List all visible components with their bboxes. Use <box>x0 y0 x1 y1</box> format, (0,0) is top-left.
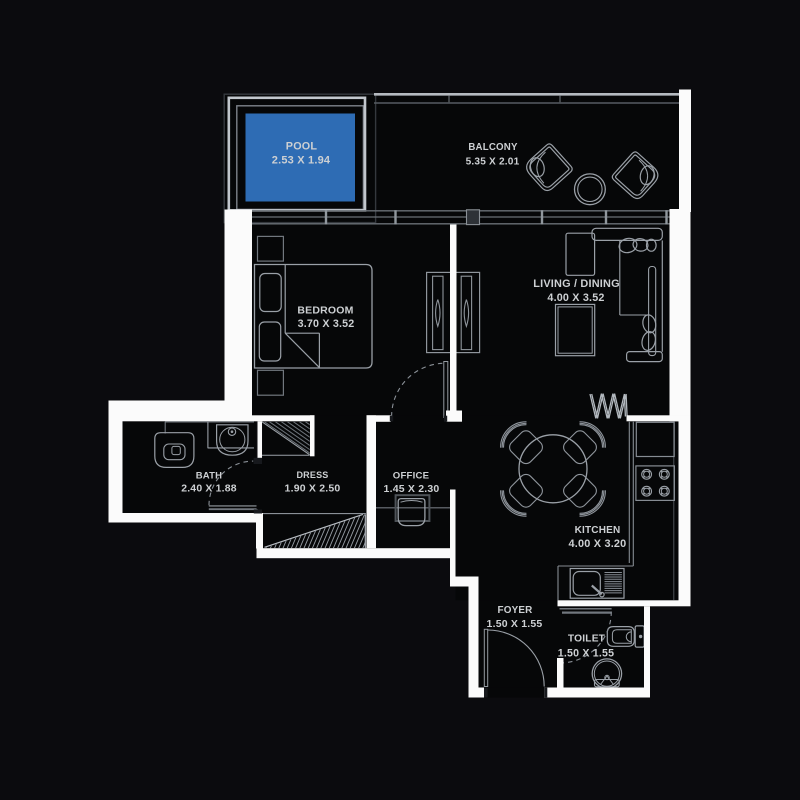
svg-text:LIVING / DINING: LIVING / DINING <box>533 278 620 290</box>
svg-text:BALCONY: BALCONY <box>468 142 518 153</box>
svg-text:TOILET: TOILET <box>568 634 606 645</box>
svg-text:BATH: BATH <box>196 471 222 482</box>
svg-text:2.40 X 1.88: 2.40 X 1.88 <box>181 484 237 495</box>
svg-text:KITCHEN: KITCHEN <box>575 525 621 536</box>
svg-text:2.53 X 1.94: 2.53 X 1.94 <box>272 155 331 167</box>
svg-text:OFFICE: OFFICE <box>393 471 430 482</box>
svg-text:4.00 X 3.52: 4.00 X 3.52 <box>547 292 604 304</box>
svg-text:DRESS: DRESS <box>296 470 328 480</box>
svg-text:1.50 X 1.55: 1.50 X 1.55 <box>487 618 543 630</box>
svg-text:3.70 X 3.52: 3.70 X 3.52 <box>298 318 355 330</box>
svg-text:POOL: POOL <box>286 141 318 153</box>
svg-text:FOYER: FOYER <box>497 605 532 616</box>
svg-text:1.90 X 2.50: 1.90 X 2.50 <box>285 483 341 495</box>
svg-text:1.50 X 1.55: 1.50 X 1.55 <box>558 648 614 660</box>
svg-text:1.45 X 2.30: 1.45 X 2.30 <box>384 483 440 495</box>
svg-text:4.00 X 3.20: 4.00 X 3.20 <box>569 538 627 550</box>
svg-text:5.35 X 2.01: 5.35 X 2.01 <box>466 157 520 168</box>
svg-text:BEDROOM: BEDROOM <box>297 305 353 317</box>
